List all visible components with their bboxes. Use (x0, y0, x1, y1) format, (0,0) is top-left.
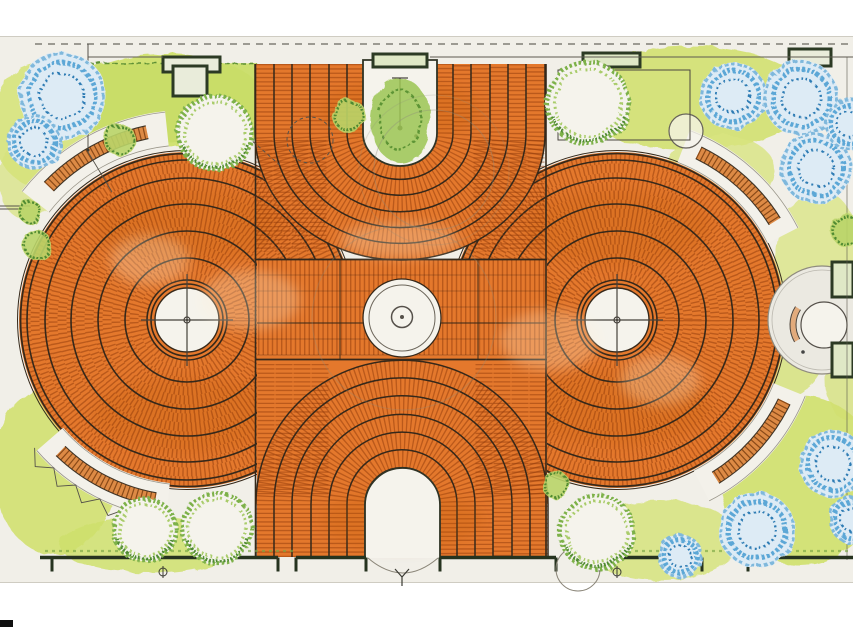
shrub (104, 124, 136, 156)
survey-pole-dot (87, 149, 90, 152)
shrub (22, 230, 52, 260)
planter-box (832, 343, 853, 377)
shrub (542, 471, 570, 499)
tree-blue (7, 115, 61, 169)
planter-box (173, 66, 207, 96)
central-fountain (363, 279, 441, 357)
highlight-blob (500, 310, 600, 370)
tree-green (559, 494, 635, 570)
tree-green (181, 492, 253, 564)
shrub (332, 99, 366, 133)
shrub-canopy (104, 124, 136, 156)
shrub (18, 200, 42, 224)
fountain-jet (400, 315, 404, 319)
highlight-blob (620, 355, 700, 405)
tree-blue (699, 62, 767, 130)
tree-green (113, 498, 177, 562)
hub-center-dot (186, 319, 188, 321)
highlight-blob (200, 270, 300, 330)
tree-blue (719, 492, 795, 568)
shrub-canopy (18, 200, 42, 224)
doorway-opening (365, 468, 440, 558)
garden-plan-host (0, 0, 853, 627)
corner-mark (0, 620, 13, 627)
highlight-blob (110, 235, 190, 285)
planter-box (832, 262, 853, 297)
scanned-plan-page (0, 0, 853, 627)
alcove-table (801, 302, 847, 348)
shrub-canopy (22, 230, 52, 260)
shrub-canopy (332, 99, 366, 133)
alcove-dot (801, 350, 805, 354)
planter-box (373, 54, 427, 67)
stone-circle (669, 114, 703, 148)
hub-center-dot (616, 319, 618, 321)
shrub-canopy (542, 471, 570, 499)
tree-green (177, 95, 253, 171)
tree-green (546, 61, 630, 145)
garden-plan-drawing (0, 0, 853, 627)
tree-blue (658, 534, 702, 578)
arched-doorway (365, 468, 440, 558)
highlight-blob (340, 222, 460, 258)
